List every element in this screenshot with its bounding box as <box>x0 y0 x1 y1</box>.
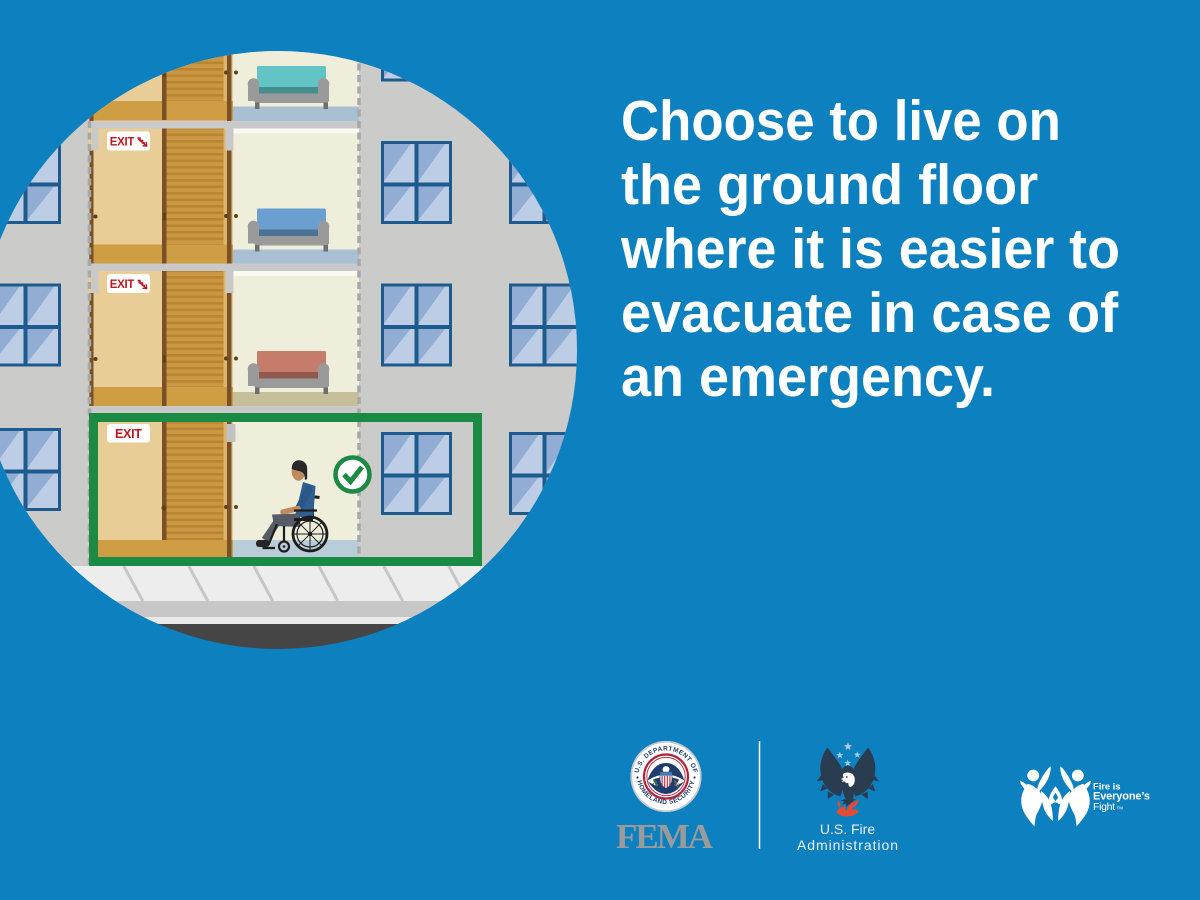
svg-text:Fight: Fight <box>1093 801 1115 813</box>
svg-text:EXIT: EXIT <box>115 427 142 441</box>
svg-text:Administration: Administration <box>797 837 898 853</box>
svg-text:FEMA: FEMA <box>616 817 714 856</box>
svg-text:TM: TM <box>1117 806 1124 811</box>
svg-text:U.S. Fire: U.S. Fire <box>820 821 875 837</box>
